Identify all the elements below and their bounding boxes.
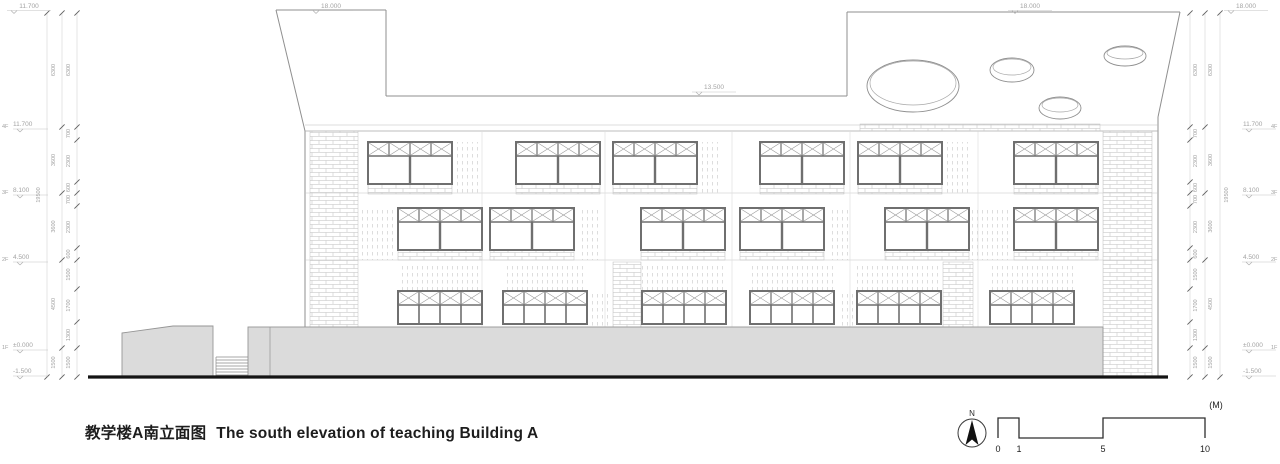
siding-hatch [642,264,726,290]
level-left: 2F4.500 [2,254,48,265]
siding-hatch [455,142,480,194]
site-wall [122,326,1103,377]
elev-far-left: 11.700 [7,3,51,14]
site-wall-left-block [122,326,213,377]
dim-label: 3600 [1208,154,1214,166]
elevation-value: 18.000 [1020,3,1040,10]
north-needle [966,420,979,445]
dim-label-overall: 19500 [1224,187,1230,202]
siding-hatch [360,208,396,260]
scale-tick-label: 1 [1016,444,1021,454]
siding-hatch [945,142,970,194]
elevation-sheet: 1950063003600360045001500630070023006007… [0,0,1280,464]
dim-label: 700 [1193,195,1199,204]
level-value: ±0.000 [1243,342,1263,349]
dim-overall-right: 19500 [1217,10,1230,379]
brick-hatch [1014,250,1098,260]
level-right: ±0.0001F [1242,342,1278,353]
dim-label: 6300 [1193,64,1199,76]
dim-label: 3600 [51,154,57,166]
skylight-dome [1039,97,1081,119]
dim-label: 700 [66,195,72,204]
elevation-value: 13.500 [704,84,724,91]
dim-label: 3600 [51,220,57,232]
stairs [216,357,248,377]
dim-label: 6300 [66,64,72,76]
siding-hatch [990,264,1074,290]
brick-hatch [490,250,574,260]
dim-label: 2300 [66,221,72,233]
siding-hatch [578,208,598,260]
skylight-dome [1104,46,1146,66]
floor-tag: 4F [2,124,9,130]
brick-hatch [613,262,641,327]
brick-hatch [860,124,1100,131]
dim-inner-right: 6300700230060070023006001500170013001500 [1187,10,1199,379]
brick-hatch [398,250,482,260]
siding-hatch [857,264,941,290]
level-value: -1.500 [1243,368,1262,375]
dim-label: 700 [66,129,72,138]
dim-label: 2300 [1193,221,1199,233]
siding-hatch [750,264,834,290]
dim-outer-left: 63003600360045001500 [51,10,65,379]
dim-label: 2300 [66,155,72,167]
level-value: 8.100 [13,187,30,194]
siding-hatch [828,208,850,260]
dim-label: 1500 [51,356,57,368]
scale-tick-label: 5 [1100,444,1105,454]
dim-label: 1300 [1193,329,1199,341]
level-value: 11.700 [13,121,33,128]
brick-hatch [858,184,942,194]
dim-label: 1500 [66,268,72,280]
elev-far-right: 18.000 [1224,3,1268,14]
brick-hatch [943,262,973,327]
elevation-drawing: 1950063003600360045001500630070023006007… [0,0,1280,464]
level-left: 1F±0.000 [2,342,48,353]
site-wall-long [248,327,1103,377]
dim-label: 1500 [1193,356,1199,368]
level-right: 8.1003F [1242,187,1278,198]
siding-hatch [972,208,1010,260]
title-en: The south elevation of teaching Building… [216,425,538,442]
brick-hatch [613,184,697,194]
scale-tick-label: 10 [1200,444,1210,454]
level-right: 4.5002F [1242,254,1278,265]
dim-label: 600 [66,183,72,192]
floor-tag: 1F [2,345,9,351]
north-arrow: N [958,409,986,447]
dim-label: 6300 [51,64,57,76]
dim-label: 1500 [66,356,72,368]
siding-hatch [838,291,854,327]
level-value: -1.500 [13,368,32,375]
floor-tag: 2F [2,257,9,263]
roof-skylights [867,46,1146,119]
dim-outer-right: 63003600360045001500 [1202,10,1214,379]
siding-hatch [398,264,482,290]
skylight-dome [867,60,959,112]
scale-bar: 01510(M) [995,400,1222,454]
elev-parapet: 13.500 [692,84,736,95]
floor-tag: 3F [2,190,9,196]
dim-label: 4500 [51,298,57,310]
level-left: -1.500 [13,368,48,379]
siding-hatch [503,264,587,290]
dim-label: 1500 [1193,268,1199,280]
dim-label: 600 [66,249,72,258]
brick-hatch [760,184,844,194]
elev-left-tower: 18.000 [309,3,353,14]
siding-hatch [592,291,610,327]
dim-label: 1700 [1193,299,1199,311]
elevation-value: 11.700 [19,3,39,10]
brick-hatch [740,250,824,260]
dim-inner-left: 6300700230060070023006001500170013001500 [66,10,80,379]
level-value: ±0.000 [13,342,33,349]
brick-hatch [516,184,600,194]
dim-label: 1500 [1208,356,1214,368]
dim-label: 4500 [1208,298,1214,310]
brick-hatch [885,250,969,260]
brick-hatch [1103,131,1152,377]
level-value: 8.100 [1243,187,1260,194]
scale-tick-label: 0 [995,444,1000,454]
north-label: N [969,409,975,418]
brick-hatch [368,184,452,194]
dim-label: 1700 [66,299,72,311]
scale-unit-label: (M) [1209,400,1223,410]
level-value: 4.500 [1243,254,1260,261]
scale-bar-line [998,418,1205,438]
drawing-title: 教学楼A南立面图The south elevation of teaching … [85,421,538,443]
level-left: 4F11.700 [2,121,48,132]
dim-label: 3600 [1208,220,1214,232]
elevation-value: 18.000 [1236,3,1256,10]
level-right: 11.7004F [1242,121,1278,132]
elevation-value: 18.000 [321,3,341,10]
brick-hatch [1014,184,1098,194]
level-value: 4.500 [13,254,30,261]
skylight-dome [990,58,1034,82]
dim-label: 600 [1193,183,1199,192]
siding-hatch [700,142,718,194]
level-value: 11.700 [1243,121,1263,128]
brick-hatch [641,250,725,260]
dim-label: 6300 [1208,64,1214,76]
title-cn: 教学楼A南立面图 [85,425,206,442]
dim-label: 2300 [1193,155,1199,167]
level-right: -1.500 [1242,368,1276,379]
dim-label: 1300 [66,329,72,341]
dim-label: 600 [1193,249,1199,258]
dim-label: 700 [1193,129,1199,138]
